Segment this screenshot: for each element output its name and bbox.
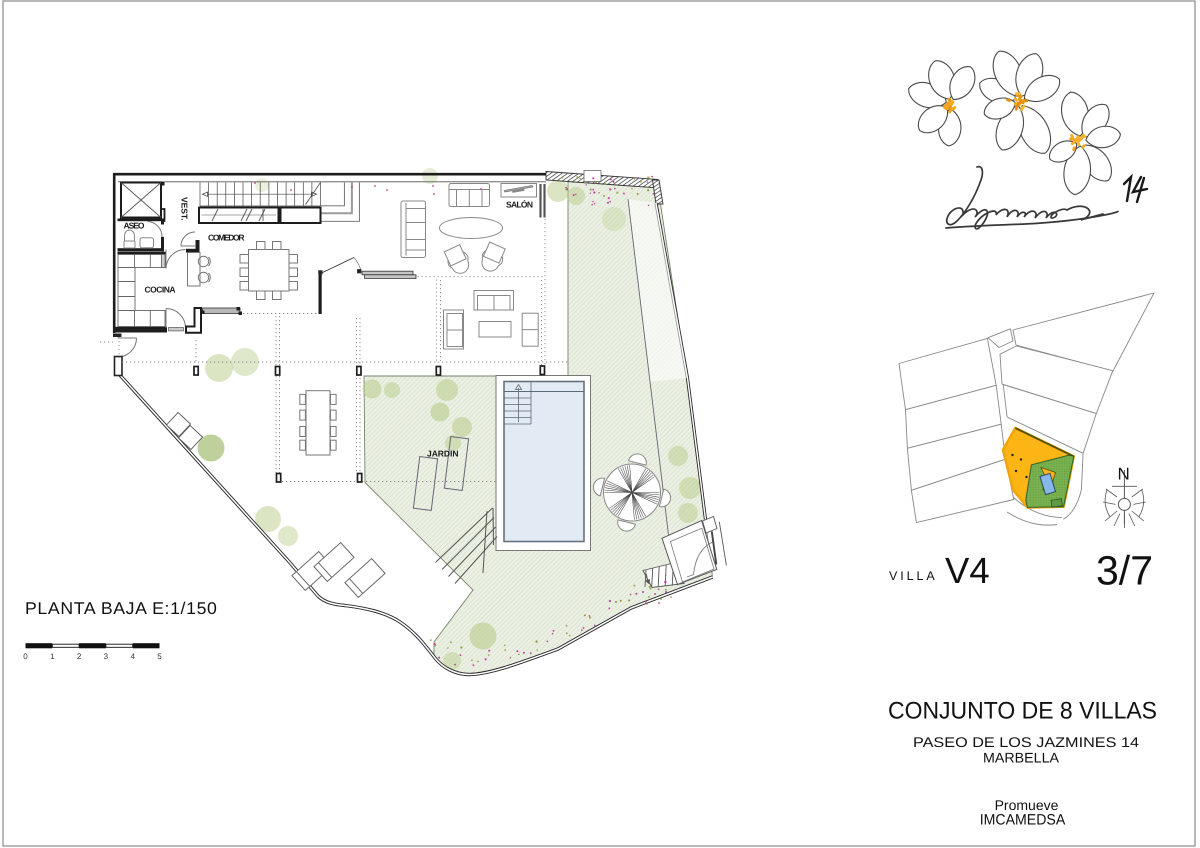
svg-text:PLANTA BAJA E:1/150: PLANTA BAJA E:1/150 <box>25 599 217 618</box>
svg-text:JARDIN: JARDIN <box>427 449 459 459</box>
svg-text:2: 2 <box>77 652 82 661</box>
svg-text:IMCAMEDSA: IMCAMEDSA <box>980 812 1066 829</box>
svg-text:N: N <box>1118 465 1130 484</box>
svg-text:3: 3 <box>104 652 109 661</box>
svg-text:SALÓN: SALÓN <box>506 200 533 210</box>
svg-text:0: 0 <box>23 652 28 661</box>
svg-text:COCINA: COCINA <box>145 285 176 295</box>
svg-text:3/7: 3/7 <box>1096 548 1153 594</box>
svg-text:V4: V4 <box>945 550 990 591</box>
svg-text:5: 5 <box>157 652 162 661</box>
svg-text:1: 1 <box>50 652 55 661</box>
svg-text:ASEO: ASEO <box>124 221 145 231</box>
svg-text:VEST.: VEST. <box>180 197 190 221</box>
svg-text:4: 4 <box>130 652 135 661</box>
svg-text:COMEDOR: COMEDOR <box>208 233 245 243</box>
svg-text:CONJUNTO DE 8 VILLAS: CONJUNTO DE 8 VILLAS <box>888 698 1157 725</box>
svg-text:PASEO DE LOS JAZMINES 14: PASEO DE LOS JAZMINES 14 <box>913 734 1139 750</box>
svg-text:MARBELLA: MARBELLA <box>983 750 1060 766</box>
svg-text:VILLA: VILLA <box>889 569 938 583</box>
